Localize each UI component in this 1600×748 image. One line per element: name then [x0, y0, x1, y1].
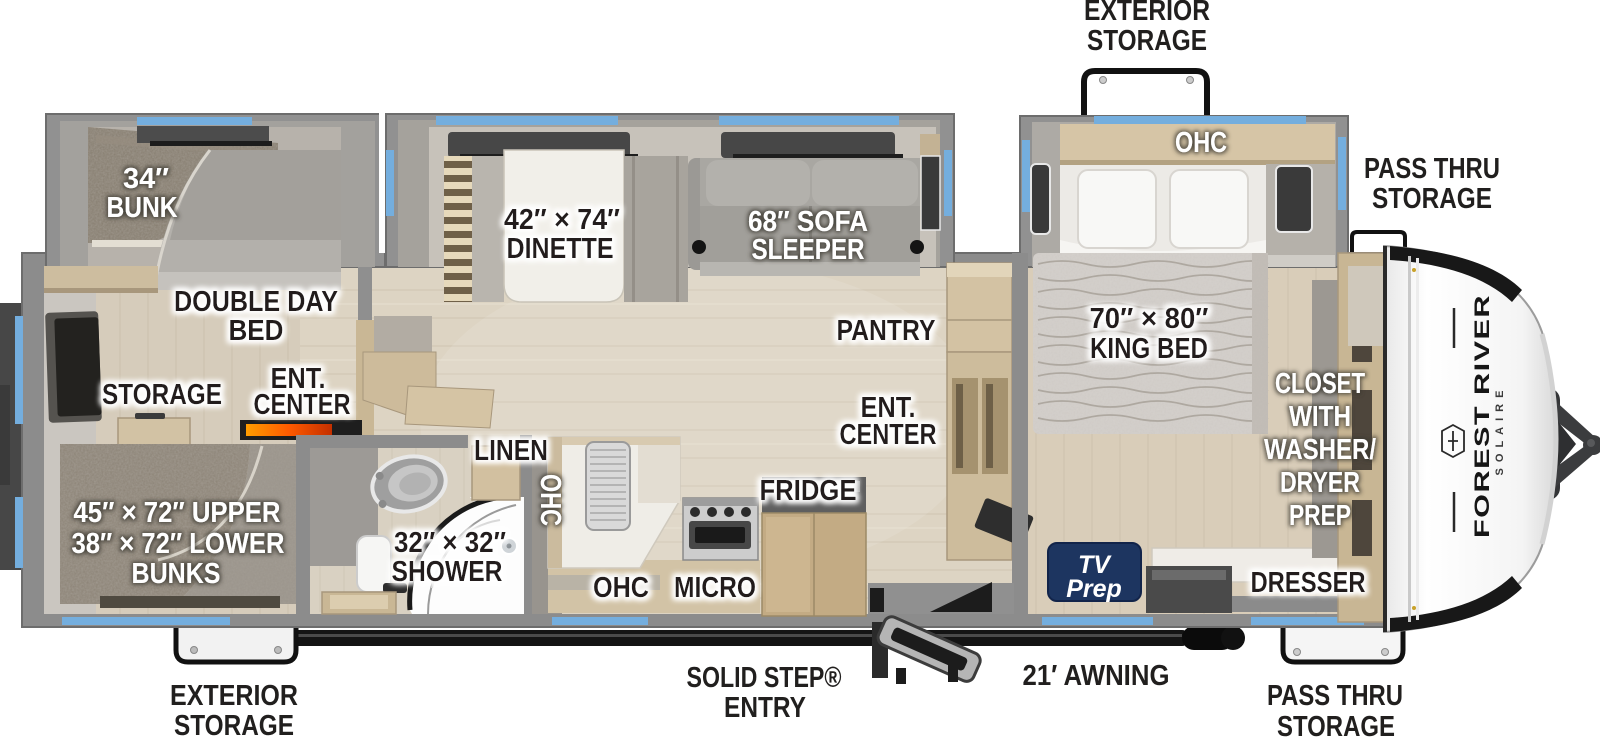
svg-text:STORAGE: STORAGE [1277, 711, 1395, 743]
svg-text:DRYER: DRYER [1280, 467, 1360, 499]
svg-text:DOUBLE DAY: DOUBLE DAY [174, 286, 338, 318]
svg-text:SOLID STEP®: SOLID STEP® [687, 662, 842, 694]
svg-text:OHC: OHC [593, 572, 649, 604]
svg-text:38″ × 72″ LOWER: 38″ × 72″ LOWER [72, 528, 285, 560]
svg-text:PASS THRU: PASS THRU [1267, 680, 1403, 712]
svg-text:WITH: WITH [1289, 401, 1351, 433]
svg-text:CLOSET: CLOSET [1275, 368, 1365, 400]
svg-text:EXTERIOR: EXTERIOR [1084, 0, 1210, 27]
svg-text:EXTERIOR: EXTERIOR [170, 680, 298, 712]
svg-text:WASHER/: WASHER/ [1264, 434, 1376, 466]
svg-text:DINETTE: DINETTE [507, 233, 614, 265]
svg-text:ENTRY: ENTRY [724, 692, 806, 724]
svg-text:DRESSER: DRESSER [1251, 567, 1366, 599]
svg-text:OHC: OHC [1175, 127, 1227, 159]
svg-text:STORAGE: STORAGE [102, 379, 222, 411]
svg-text:BED: BED [229, 315, 284, 347]
svg-text:34″: 34″ [123, 163, 169, 195]
svg-text:STORAGE: STORAGE [174, 710, 294, 742]
svg-text:FRIDGE: FRIDGE [760, 475, 857, 507]
svg-text:PASS THRU: PASS THRU [1364, 153, 1500, 185]
svg-text:32″ × 32″: 32″ × 32″ [394, 527, 506, 559]
svg-text:PANTRY: PANTRY [837, 315, 936, 347]
svg-text:Prep: Prep [1066, 575, 1122, 603]
svg-text:SLEEPER: SLEEPER [752, 234, 865, 266]
svg-text:42″ × 74″: 42″ × 74″ [504, 204, 620, 236]
svg-text:PREP: PREP [1289, 500, 1351, 532]
svg-text:LINEN: LINEN [474, 435, 548, 467]
svg-text:45″ × 72″ UPPER: 45″ × 72″ UPPER [74, 497, 281, 529]
svg-text:BUNK: BUNK [107, 192, 178, 224]
svg-text:BUNKS: BUNKS [132, 558, 221, 590]
svg-text:STORAGE: STORAGE [1372, 183, 1492, 215]
svg-text:STORAGE: STORAGE [1087, 25, 1207, 57]
svg-text:OHC: OHC [534, 474, 566, 526]
svg-text:SOLAIRE: SOLAIRE [1494, 385, 1506, 476]
svg-text:CENTER: CENTER [254, 389, 351, 421]
svg-text:KING BED: KING BED [1090, 333, 1208, 365]
svg-text:FOREST RIVER: FOREST RIVER [1471, 294, 1494, 538]
svg-text:MICRO: MICRO [674, 572, 756, 604]
svg-text:CENTER: CENTER [840, 419, 937, 451]
svg-text:21′ AWNING: 21′ AWNING [1023, 660, 1170, 692]
svg-text:70″ × 80″: 70″ × 80″ [1090, 303, 1209, 335]
svg-text:SHOWER: SHOWER [392, 556, 503, 588]
